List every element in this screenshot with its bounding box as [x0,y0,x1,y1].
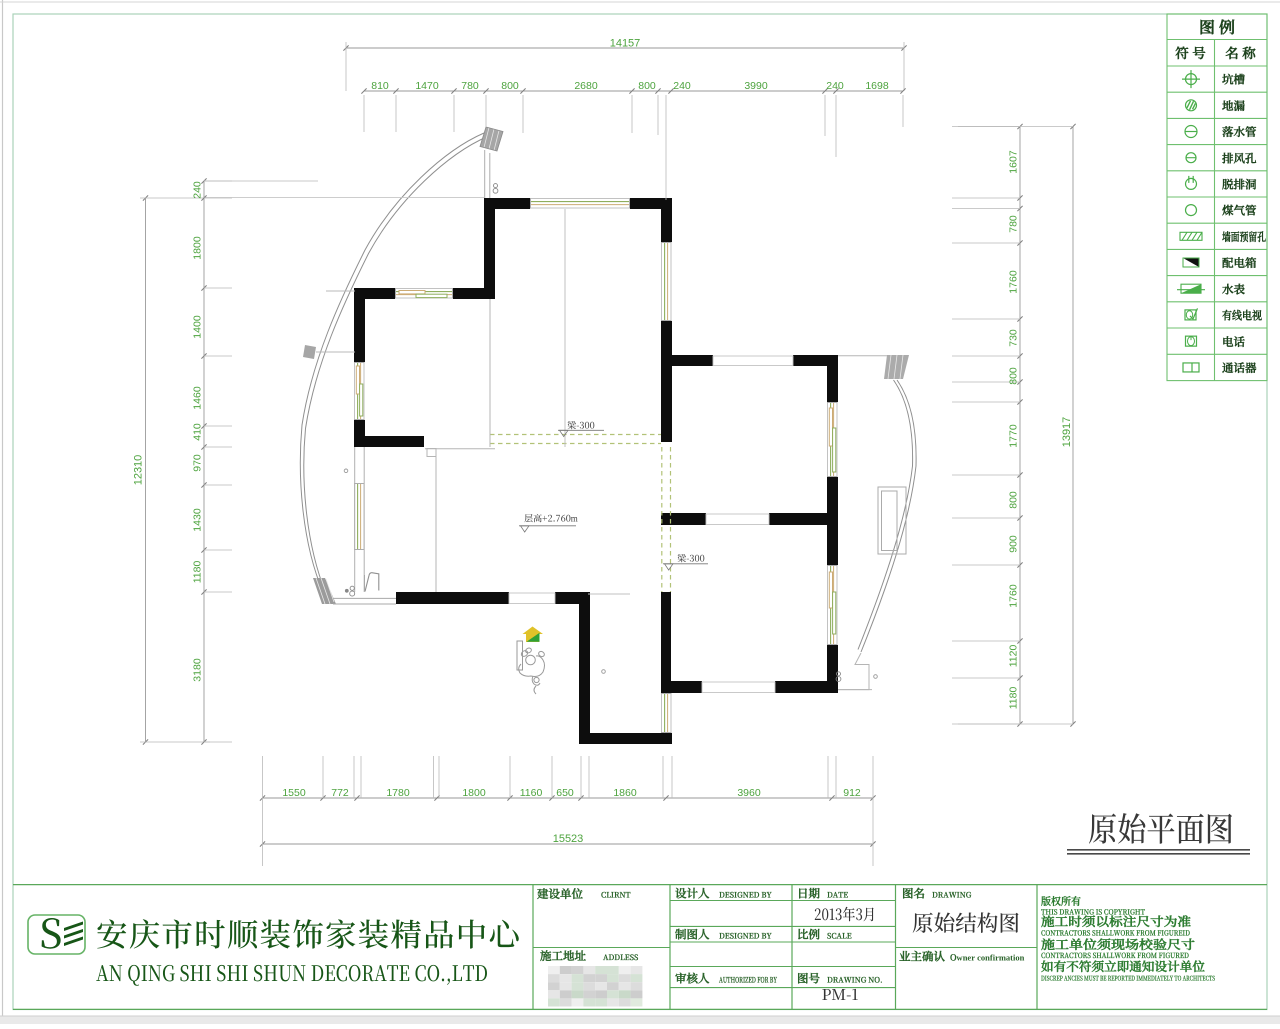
svg-text:810: 810 [371,80,389,92]
svg-text:排风孔: 排风孔 [1221,150,1257,166]
svg-text:图号: 图号 [797,971,820,987]
svg-text:800: 800 [1008,367,1020,385]
svg-text:800: 800 [638,80,656,92]
svg-text:772: 772 [331,787,349,799]
svg-text:15523: 15523 [553,833,584,845]
svg-text:1780: 1780 [386,787,410,799]
svg-text:912: 912 [843,787,861,799]
svg-text:建设单位: 建设单位 [536,886,583,902]
svg-text:坑槽: 坑槽 [1221,72,1245,88]
svg-text:13917: 13917 [1061,417,1073,448]
svg-text:1760: 1760 [1008,270,1020,294]
svg-text:900: 900 [1008,535,1020,553]
svg-text:1470: 1470 [415,80,439,92]
svg-text:800: 800 [1008,491,1020,509]
svg-text:梁-300: 梁-300 [677,552,705,565]
svg-text:图名: 图名 [902,886,925,902]
svg-text:1760: 1760 [1008,584,1020,608]
svg-text:水表: 水表 [1221,281,1245,297]
svg-text:煤气管: 煤气管 [1221,203,1257,219]
svg-text:3960: 3960 [737,787,761,799]
svg-text:CLIRNT: CLIRNT [601,890,631,901]
svg-text:3180: 3180 [192,658,204,682]
svg-text:通话器: 通话器 [1221,360,1257,376]
svg-text:800: 800 [501,80,519,92]
svg-text:2013年3月: 2013年3月 [814,903,876,925]
svg-text:审核人: 审核人 [675,971,710,987]
svg-text:电话: 电话 [1222,334,1245,350]
svg-text:1160: 1160 [520,787,543,799]
svg-text:1550: 1550 [282,787,306,799]
svg-text:原始结构图: 原始结构图 [912,907,1020,938]
svg-text:脱排洞: 脱排洞 [1222,177,1257,193]
svg-text:业主确认: 业主确认 [899,949,945,965]
svg-text:梁-300: 梁-300 [567,419,595,432]
svg-text:设计人: 设计人 [675,886,710,902]
svg-text:1430: 1430 [192,508,204,532]
svg-text:DESIGNED BY: DESIGNED BY [719,890,772,901]
svg-text:层高+2.760m: 层高+2.760m [524,512,578,525]
svg-text:ADDLESS: ADDLESS [602,952,639,963]
svg-text:DATE: DATE [827,890,848,901]
svg-text:730: 730 [1008,329,1020,347]
svg-text:PM-1: PM-1 [822,984,859,1005]
svg-text:Owner confirmation: Owner confirmation [950,952,1025,964]
svg-text:410: 410 [192,423,204,441]
svg-text:图 例: 图 例 [1199,15,1235,38]
svg-text:780: 780 [461,80,479,92]
svg-text:1607: 1607 [1008,150,1020,174]
svg-text:DISCREP ANCIES MUST BE REPORTE: DISCREP ANCIES MUST BE REPORTED IMMEDIAT… [1041,974,1215,983]
svg-text:SCALE: SCALE [827,931,852,942]
svg-text:1460: 1460 [192,386,204,410]
svg-text:AUTHORIZED FOR BY: AUTHORIZED FOR BY [718,975,777,986]
svg-text:3990: 3990 [744,80,768,92]
svg-text:有线电视: 有线电视 [1222,308,1262,324]
svg-text:780: 780 [1008,215,1020,233]
svg-text:1180: 1180 [192,561,204,584]
svg-text:970: 970 [192,454,204,472]
svg-text:14157: 14157 [610,38,641,50]
svg-text:650: 650 [556,787,574,799]
svg-text:1800: 1800 [192,236,204,260]
svg-text:1698: 1698 [865,80,889,92]
svg-text:S: S [39,903,62,960]
svg-text:制图人: 制图人 [675,927,710,943]
svg-text:1400: 1400 [192,315,204,339]
svg-text:DESIGNED BY: DESIGNED BY [719,931,772,942]
svg-text:比例: 比例 [797,927,820,943]
svg-text:名 称: 名 称 [1225,42,1256,62]
svg-text:240: 240 [192,181,204,199]
svg-text:地漏: 地漏 [1222,98,1245,114]
svg-text:2680: 2680 [574,80,598,92]
svg-text:日期: 日期 [797,886,820,902]
svg-text:配电箱: 配电箱 [1222,255,1257,271]
svg-text:1120: 1120 [1008,645,1020,668]
svg-text:施工地址: 施工地址 [540,948,586,964]
svg-text:DRAWING: DRAWING [932,890,972,901]
svg-text:12310: 12310 [133,455,145,486]
svg-text:240: 240 [826,80,844,92]
svg-text:施工时须以标注尺寸为准: 施工时须以标注尺寸为准 [1041,912,1192,930]
svg-text:1860: 1860 [613,787,637,799]
svg-text:AN QING SHI SHI SHUN DECORATE: AN QING SHI SHI SHUN DECORATE CO.,LTD [96,957,488,988]
svg-text:240: 240 [673,80,691,92]
svg-text:安庆市时顺装饰家装精品中心: 安庆市时顺装饰家装精品中心 [96,911,522,956]
svg-text:1180: 1180 [1008,687,1020,710]
svg-text:原始平面图: 原始平面图 [1088,804,1234,851]
svg-text:1800: 1800 [462,787,486,799]
svg-text:如有不符须立即通知设计单位: 如有不符须立即通知设计单位 [1040,957,1205,975]
svg-text:1770: 1770 [1008,424,1020,448]
svg-text:落水管: 落水管 [1222,124,1257,140]
svg-text:墙面预留孔: 墙面预留孔 [1222,229,1266,245]
svg-text:符 号: 符 号 [1175,42,1206,62]
